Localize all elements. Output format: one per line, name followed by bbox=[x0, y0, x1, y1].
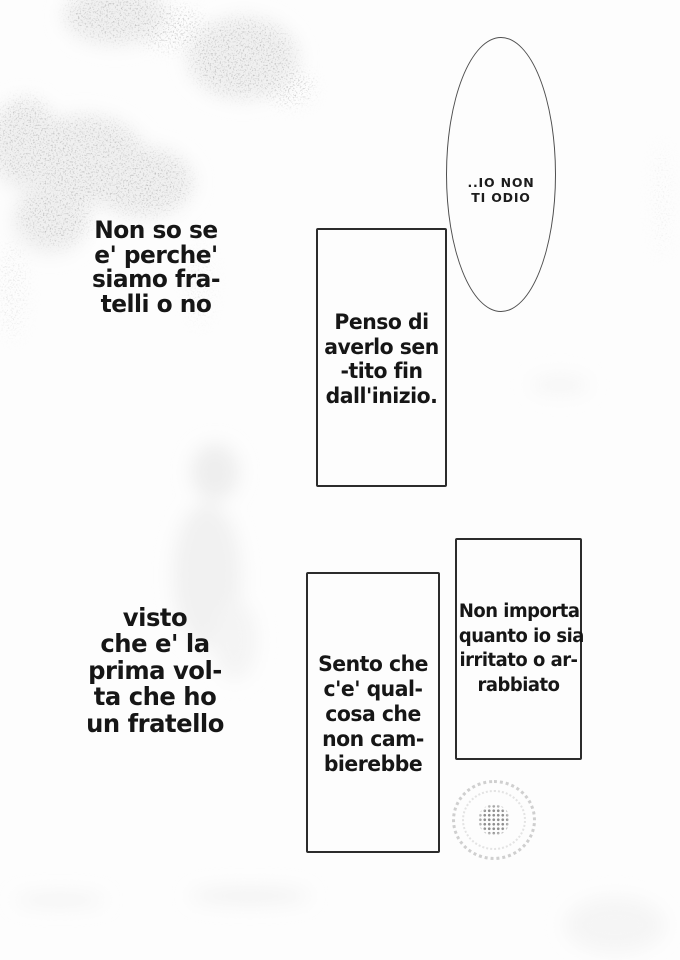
caption-box-non-importa: Non importa quanto io sia irritato o ar-… bbox=[455, 538, 582, 760]
text-line: visto bbox=[48, 605, 261, 631]
text-line: siamo fra- bbox=[49, 267, 262, 292]
text-line: Sento che bbox=[310, 652, 436, 677]
text-line: ..IO NON bbox=[446, 176, 556, 191]
caption-box-penso: Penso di averlo sen -tito fin dall'inizi… bbox=[316, 228, 447, 487]
text-line: che e' la bbox=[48, 631, 261, 657]
text-line: e' perche' bbox=[49, 243, 262, 268]
text-line: bierebbe bbox=[310, 752, 436, 777]
text-line: -tito fin bbox=[320, 359, 443, 384]
speech-bubble-text: ..IO NON TI ODIO bbox=[446, 176, 556, 205]
caption-text: Penso di averlo sen -tito fin dall'inizi… bbox=[320, 310, 443, 409]
text-line: dall'inizio. bbox=[320, 384, 443, 409]
text-line: Non importa bbox=[459, 600, 578, 625]
text-line: irritato o ar- bbox=[459, 649, 578, 674]
text-line: un fratello bbox=[48, 711, 261, 737]
narration-bottom-left: visto che e' la prima vol- ta che ho un … bbox=[48, 605, 261, 737]
text-line: rabbiato bbox=[459, 674, 578, 699]
text-line: telli o no bbox=[49, 292, 262, 317]
caption-text: Sento che c'e' qual- cosa che non cam- b… bbox=[310, 652, 436, 777]
manga-page: ..IO NON TI ODIO Non so se e' perche' si… bbox=[0, 0, 680, 960]
text-line: averlo sen bbox=[320, 335, 443, 360]
flower-core-dots bbox=[478, 804, 510, 836]
caption-box-sento: Sento che c'e' qual- cosa che non cam- b… bbox=[306, 572, 440, 853]
stipple-flower-motif bbox=[452, 780, 536, 860]
text-line: TI ODIO bbox=[446, 191, 556, 206]
text-line: prima vol- bbox=[48, 658, 261, 684]
text-line: Non so se bbox=[49, 218, 262, 243]
text-line: ta che ho bbox=[48, 684, 261, 710]
caption-text: Non importa quanto io sia irritato o ar-… bbox=[459, 600, 578, 698]
narration-top-left: Non so se e' perche' siamo fra- telli o … bbox=[49, 218, 262, 316]
text-line: cosa che bbox=[310, 702, 436, 727]
text-line: Penso di bbox=[320, 310, 443, 335]
text-line: c'e' qual- bbox=[310, 677, 436, 702]
text-line: non cam- bbox=[310, 727, 436, 752]
text-line: quanto io sia bbox=[459, 625, 578, 650]
